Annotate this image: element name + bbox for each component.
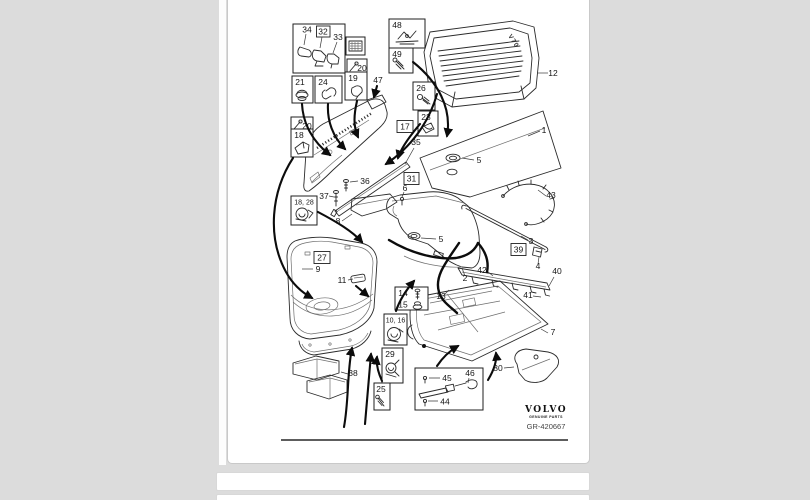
part-label-42: 42 (477, 265, 487, 275)
part-label-24: 24 (318, 77, 328, 87)
box-screw-25: 25 (374, 383, 390, 410)
part-label-17: 17 (400, 122, 410, 132)
part-sill-cover (458, 247, 550, 296)
part-label-10-16: 10, 16 (386, 318, 406, 325)
box-clip-48: 48 (389, 19, 425, 48)
box-grommet-21: 21 (292, 76, 313, 103)
part-tailgate-panel (287, 237, 377, 355)
part-label-3: 3 (529, 236, 534, 246)
part-label-31: 31 (407, 174, 417, 184)
box-clips-32-33-34: 34 32 33 (293, 24, 345, 73)
part-label-46: 46 (465, 368, 475, 378)
part-label-48: 48 (392, 20, 402, 30)
part-label-18: 18 (294, 130, 304, 140)
part-label-11: 11 (338, 275, 347, 285)
screw-36 (344, 180, 349, 192)
part-label-21: 21 (295, 77, 305, 87)
part-harness (502, 180, 555, 225)
part-label-47: 47 (373, 75, 383, 85)
part-label-12: 12 (548, 68, 558, 78)
part-label-25: 25 (376, 384, 386, 394)
part-label-27: 27 (317, 253, 327, 263)
part-label-44: 44 (440, 397, 450, 407)
part-label-26: 26 (416, 83, 426, 93)
box-clip-18-28: 18, 28 (291, 196, 317, 225)
part-pad (515, 349, 559, 382)
box-label-plate (346, 37, 365, 55)
part-label-49: 49 (392, 49, 402, 59)
box-clip-29: 29 (382, 348, 403, 383)
box-screw-49: 49 (389, 48, 413, 73)
part-load-floor (420, 111, 561, 197)
box-clip-24: 24 (315, 76, 342, 103)
part-label-7: 7 (551, 327, 556, 337)
part-label-5a: 5 (477, 155, 482, 165)
part-label-34: 34 (302, 25, 312, 35)
part-label-37: 37 (319, 191, 329, 201)
volvo-logo: VOLVO (521, 406, 571, 415)
box-screw-14-15: 14 15 (395, 287, 428, 310)
tray-model-text: V70 (506, 33, 520, 49)
part-label-29: 29 (385, 349, 395, 359)
part-label-32: 32 (318, 27, 328, 37)
part-label-36: 36 (360, 176, 370, 186)
part-label-43: 43 (546, 190, 556, 200)
volvo-genuine-parts-text: GENUINE PARTS (521, 415, 571, 420)
part-scuff-strip (331, 162, 410, 217)
part-label-6: 6 (403, 183, 408, 193)
part-storage-trays (293, 356, 347, 399)
exploded-parts-diagram: V70 (0, 0, 810, 500)
part-label-1: 1 (542, 125, 547, 135)
box-clip-19: 19 (345, 72, 367, 100)
part-label-33: 33 (333, 32, 343, 42)
part-label-40: 40 (552, 266, 562, 276)
bolt-37 (334, 191, 339, 207)
pdf-viewer-canvas: V70 (0, 0, 810, 500)
part-label-39: 39 (514, 245, 524, 255)
drawing-code: GR-420667 (513, 422, 579, 432)
part-label-19: 19 (348, 73, 358, 83)
fastener-6 (400, 197, 403, 205)
part-label-5b: 5 (439, 234, 444, 244)
box-screw-26: 26 (413, 82, 435, 110)
box-clip-10-16: 10, 16 (384, 314, 407, 345)
part-label-9: 9 (316, 264, 321, 274)
part-label-41: 41 (523, 290, 533, 300)
part-label-2: 2 (463, 273, 468, 283)
page-bottom-rule (281, 439, 568, 441)
box-strap-kit-44-45-46: 45 46 44 (415, 368, 483, 410)
part-label-18-28: 18, 28 (294, 200, 314, 207)
part-support-rod (462, 205, 548, 252)
part-label-45: 45 (442, 373, 452, 383)
